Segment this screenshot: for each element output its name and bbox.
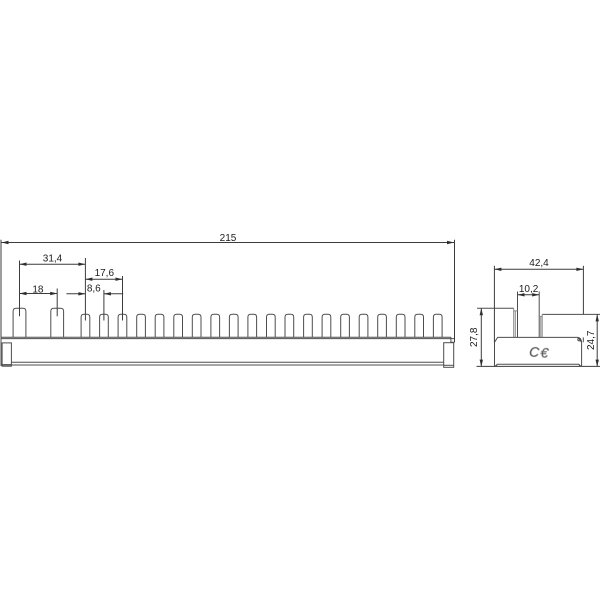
svg-text:215: 215 [220, 233, 237, 244]
svg-text:17,6: 17,6 [95, 268, 115, 279]
svg-text:27,8: 27,8 [469, 327, 480, 347]
svg-text:10,2: 10,2 [519, 284, 539, 295]
svg-text:24,7: 24,7 [586, 330, 597, 350]
svg-text:42,4: 42,4 [529, 258, 549, 269]
svg-text:18: 18 [32, 284, 44, 295]
svg-text:31,4: 31,4 [43, 254, 63, 265]
svg-text:8,6: 8,6 [87, 283, 101, 294]
svg-text:C€: C€ [529, 344, 550, 360]
